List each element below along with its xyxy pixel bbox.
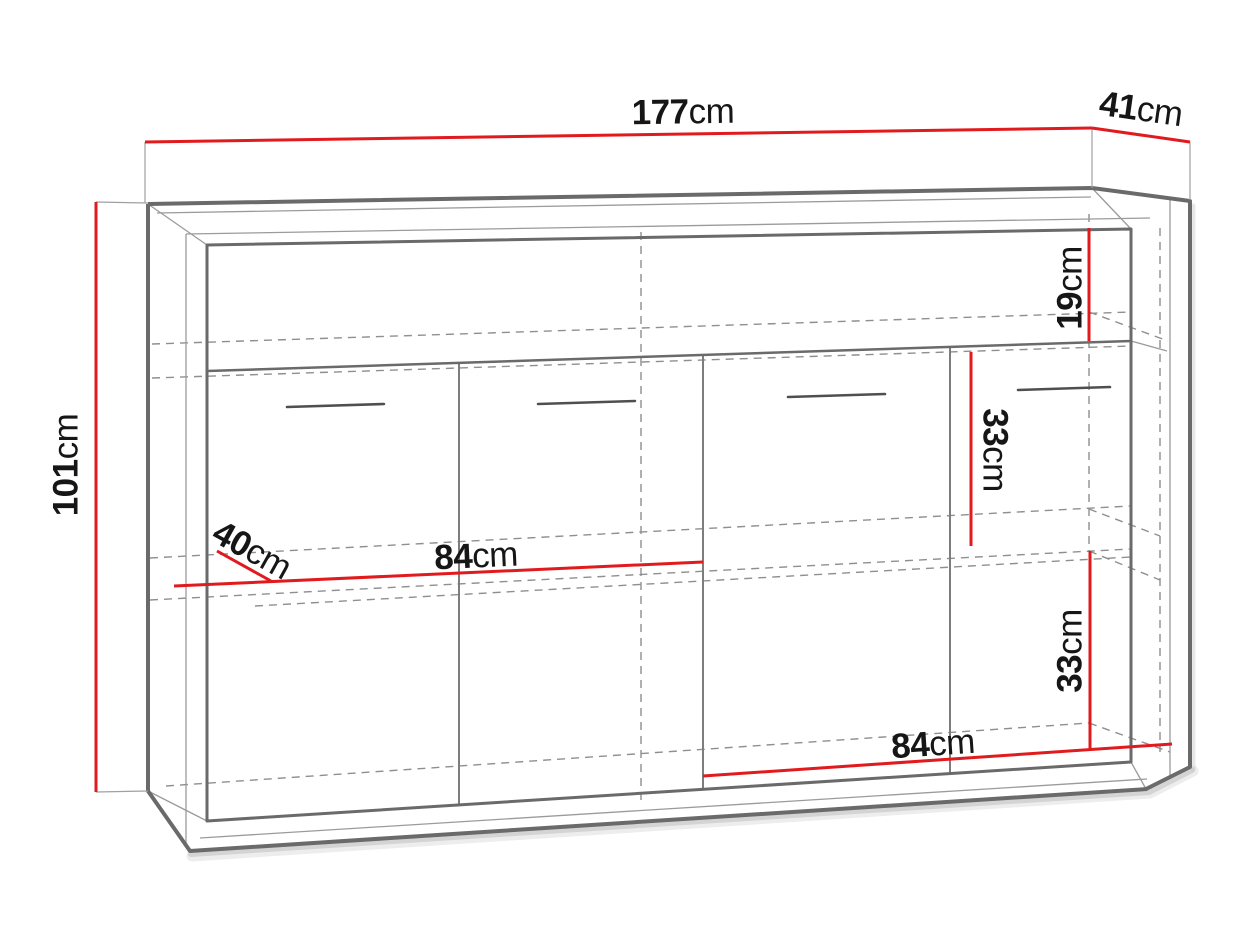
dim-bottom-width-unit: cm (928, 722, 976, 764)
dim-middle-section-label: 33cm (978, 408, 1013, 492)
handle-door-2 (538, 401, 635, 404)
panel-edges (148, 188, 1170, 845)
cabinet-shadow (191, 206, 1193, 856)
dim-middle-width-unit: cm (471, 535, 518, 576)
door-gap-lines (459, 347, 950, 805)
dim-height-label: 101cm (49, 414, 84, 517)
handle-door-4 (1018, 387, 1110, 390)
handle-door-3 (788, 394, 885, 397)
dim-width-value: 177 (631, 92, 688, 132)
dim-bottom-section-value: 33 (1051, 655, 1090, 693)
dim-middle-section-unit: cm (976, 446, 1015, 492)
dim-width-label: 177cm (631, 94, 734, 130)
dim-middle-section-value: 33 (976, 408, 1015, 446)
dim-top-section-value: 19 (1051, 292, 1090, 330)
dim-width-unit: cm (688, 92, 734, 132)
hidden-edges (150, 214, 1170, 800)
handle-door-1 (287, 404, 384, 407)
dim-middle-width-value: 84 (433, 537, 473, 578)
dim-bottom-section-unit: cm (1051, 609, 1090, 655)
dim-depth-unit: cm (1134, 89, 1185, 134)
dim-bottom-width-value: 84 (890, 725, 930, 766)
dim-height-unit: cm (47, 414, 86, 460)
dim-top-section-unit: cm (1051, 246, 1090, 292)
cabinet-line-drawing (0, 0, 1259, 944)
dim-middle-width-label: 84cm (433, 537, 518, 576)
door-handles (287, 387, 1110, 407)
dim-depth-value: 41 (1097, 84, 1140, 128)
dim-bottom-width-label: 84cm (890, 724, 976, 764)
dimension-diagram: 177cm 41cm 101cm 19cm 33cm 33cm 40cm 84c… (0, 0, 1259, 944)
dim-bottom-section-label: 33cm (1053, 609, 1088, 693)
dimension-lines (96, 128, 1190, 792)
dim-height-value: 101 (47, 459, 86, 516)
dim-line-width (145, 128, 1092, 142)
extension-lines (96, 128, 1190, 792)
dim-top-section-label: 19cm (1053, 246, 1088, 330)
